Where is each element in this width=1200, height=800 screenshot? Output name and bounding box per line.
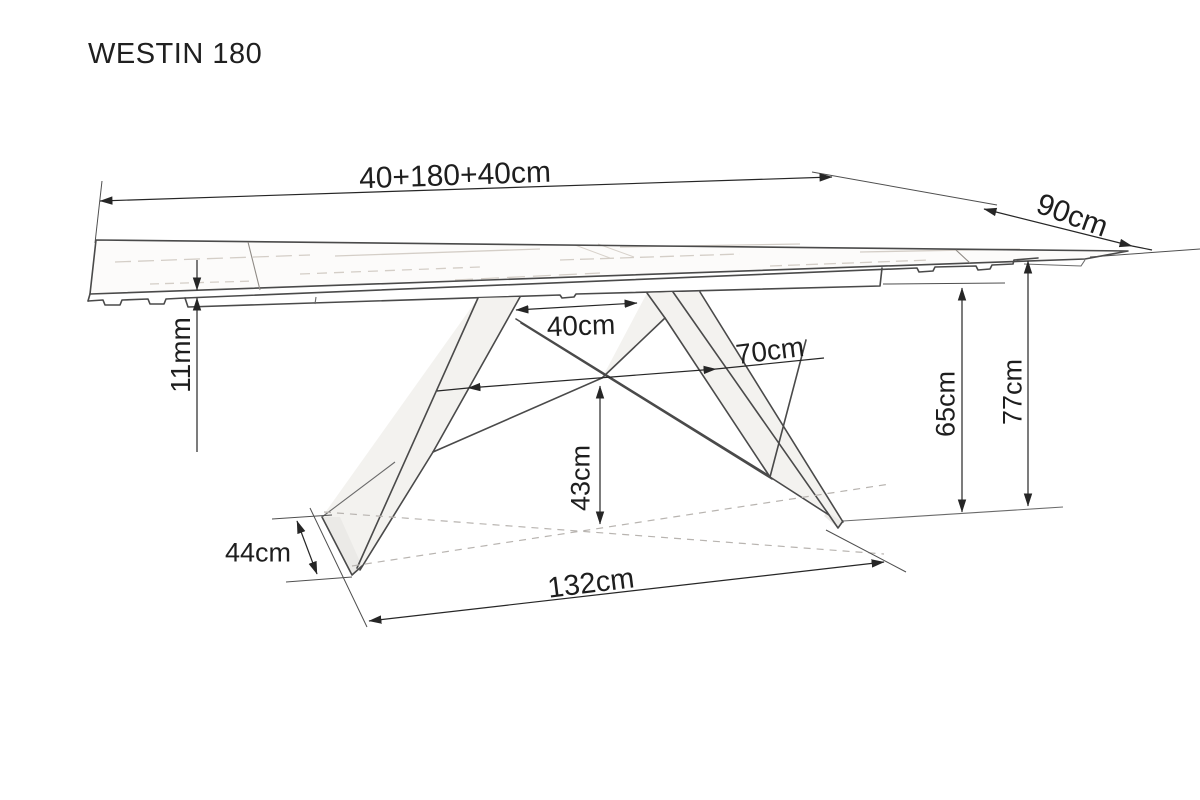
left-blade-outer-edge — [357, 298, 478, 568]
dim-label-clearance: 43cm — [568, 445, 595, 511]
diagram-page: WESTIN 180 40+180+40cm 90cm 11mm 40cm 70… — [0, 0, 1200, 800]
dim-label-attach-gap: 40cm — [546, 311, 615, 341]
floor-line — [843, 507, 1063, 521]
dim-label-total-length: 40+180+40cm — [359, 158, 552, 195]
dim-attach-gap — [516, 303, 637, 310]
dim-label-underside-height: 65cm — [933, 371, 960, 437]
dim-label-foot-width: 44cm — [225, 540, 291, 567]
dim-label-top-thickness: 11mm — [167, 317, 195, 393]
dim-label-total-height: 77cm — [1000, 359, 1027, 425]
page-title: WESTIN 180 — [88, 38, 262, 71]
table-top — [88, 240, 1128, 307]
